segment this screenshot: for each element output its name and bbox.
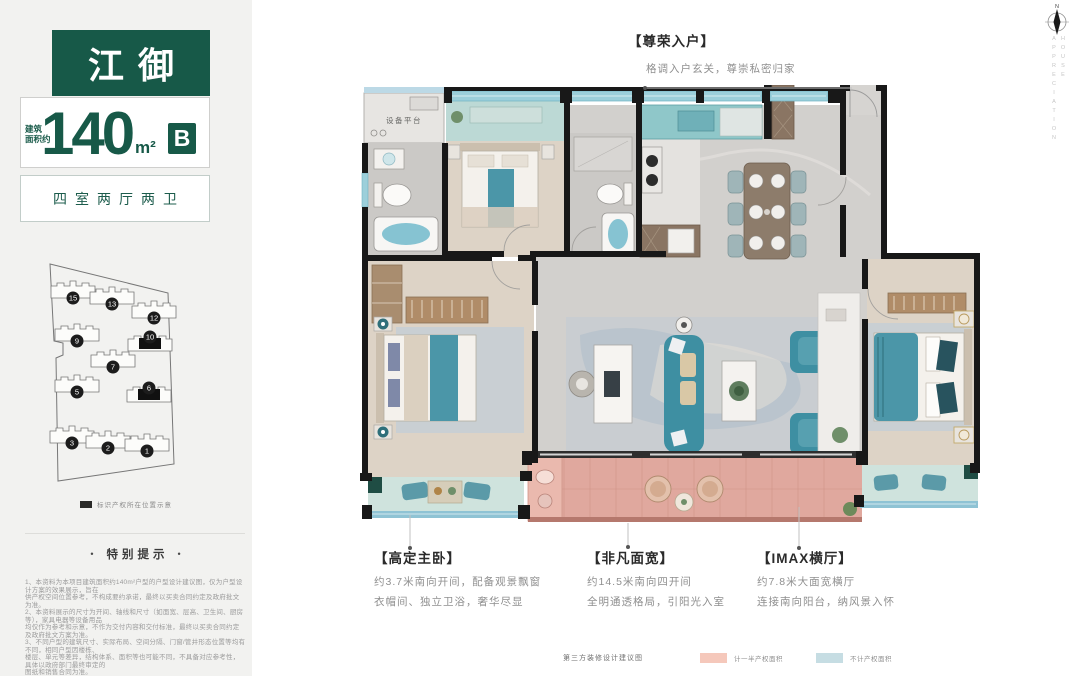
svg-text:13: 13 (108, 300, 116, 309)
window-left (362, 173, 368, 207)
svg-text:1: 1 (145, 447, 149, 456)
room-bedroom-3 (865, 259, 975, 465)
notice-line: 1、本资料为本项目建筑面积约140m²户型的户型设计建议图，仅为户型设计方案的效… (25, 579, 246, 594)
kitchen-sink (678, 111, 714, 131)
notice-body: 1、本资料为本项目建筑面积约140m²户型的户型设计建议图，仅为户型设计方案的效… (25, 579, 246, 676)
legend-label-half-area: 计一半产权面积 (734, 653, 783, 663)
master-bay-window (368, 477, 524, 513)
room-bathroom-2 (570, 133, 636, 257)
svg-text:15: 15 (69, 294, 77, 303)
brand-name: 江御 (52, 30, 210, 96)
compass-icon: N (1042, 2, 1072, 38)
site-building-2: 2 (86, 431, 130, 455)
unit-type-badge: B (168, 123, 196, 154)
svg-text:12: 12 (150, 314, 158, 323)
area-value: 140 (41, 98, 132, 169)
notice-title: 特别提示 (103, 546, 169, 562)
equipment-platform-label: 设备平台 (386, 115, 422, 125)
balcony-laundry (528, 457, 562, 521)
room-equipment-platform: 设备平台 (364, 87, 444, 143)
callout-entry: 【尊荣入户】 格调入户玄关，尊崇私密归家 (628, 30, 796, 80)
callout-master-line-2: 衣帽间、独立卫浴，奢华尽显 (374, 593, 541, 613)
legend-title: 第三方装修设计建议图 (563, 653, 643, 663)
bedroom-3-bay-window (860, 465, 978, 503)
callout-frontage: 【非凡面宽】 约14.5米南向四开间 全明通透格局，引阳光入室 (587, 547, 725, 612)
callout-master-line-1: 约3.7米南向开间，配备观景飘窗 (374, 573, 541, 593)
legend-swatch-half-area (700, 653, 727, 663)
callout-imax-line-1: 约7.8米大面宽横厅 (757, 573, 895, 593)
plan-legend: 第三方装修设计建议图 计一半产权面积 不计产权面积 (563, 653, 892, 663)
notice-dot-left: • (90, 549, 93, 559)
room-balcony (528, 457, 862, 521)
kitchen-stove (642, 147, 662, 193)
site-building-9: 9 (55, 324, 99, 348)
callout-master-title: 【高定主卧】 (374, 547, 541, 567)
siteplan-highlight-swatch (80, 501, 92, 508)
svg-text:2: 2 (106, 444, 110, 453)
siteplan-caption: 标识产权所在位置示意 (80, 499, 172, 509)
svg-text:3: 3 (70, 439, 74, 448)
area-box: 建筑 面积约 140 m² B (20, 97, 210, 168)
legend-label-no-area: 不计产权面积 (850, 653, 892, 663)
room-bathroom-1 (368, 143, 444, 257)
wardrobe (406, 297, 488, 323)
site-building-13: 13 (90, 287, 134, 311)
svg-text:7: 7 (111, 363, 115, 372)
side-text-house: HOUSE (1060, 36, 1066, 81)
sidebar-divider (25, 533, 245, 534)
svg-text:9: 9 (75, 337, 79, 346)
walk-in-closet (372, 265, 402, 323)
notice-line: 楼层、单元等差异，结构体系、面积等也可能不同，不具备对应参考性，具体以政府部门最… (25, 654, 246, 669)
site-building-5: 5 (55, 375, 99, 399)
site-building-6-highlighted: 6 (127, 382, 171, 403)
notice-line: 供产权空间位置参考，不构成要约承诺，最终以买卖合同约定及政府批文为准。 (25, 594, 246, 609)
living-room-furniture (566, 293, 860, 469)
callout-imax-title: 【IMAX横厅】 (757, 547, 895, 567)
site-plan: 15 13 12 9 10 7 5 6 3 2 1 (25, 255, 240, 495)
callout-frontage-line-2: 全明通透格局，引阳光入室 (587, 593, 725, 613)
site-building-1: 1 (125, 434, 169, 458)
notice-line: 均仅作为参考和示意，不作为交付内容和交付标准，最终以买卖合同约定及政府批文方案为… (25, 624, 246, 639)
notice-dot-right: • (178, 549, 181, 559)
callout-imax-line-2: 连接南向阳台，纳风景入怀 (757, 593, 895, 613)
callout-frontage-title: 【非凡面宽】 (587, 547, 725, 567)
callout-entry-line: 格调入户玄关，尊崇私密归家 (628, 60, 796, 80)
callout-imax-hall: 【IMAX横厅】 约7.8米大面宽横厅 连接南向阳台，纳风景入怀 (757, 547, 895, 612)
side-text-appreciation: APPRECIATION (1051, 36, 1057, 144)
floor-plan: 设备平台 (360, 85, 980, 555)
notice-line: 3、不同户型的建筑尺寸、实际布局、空间分隔、门窗/管井形态位置等均有不同，相同户… (25, 639, 246, 654)
callout-entry-title: 【尊荣入户】 (628, 30, 796, 50)
room-master-bedroom (368, 261, 534, 477)
site-building-7: 7 (91, 350, 135, 374)
svg-text:10: 10 (146, 333, 154, 342)
callout-master-bedroom: 【高定主卧】 约3.7米南向开间，配备观景飘窗 衣帽间、独立卫浴，奢华尽显 (374, 547, 541, 612)
special-notice: • 特别提示 • 1、本资料为本项目建筑面积约140m²户型的户型设计建议图，仅… (25, 546, 246, 676)
site-building-10-highlighted: 10 (128, 331, 172, 352)
notice-line: 图纸和销售合同为准。 (25, 669, 246, 676)
layout-type: 四室两厅两卫 (20, 175, 210, 222)
room-bedroom-2 (446, 97, 564, 257)
site-building-15: 15 (51, 281, 95, 305)
legend-swatch-no-area (816, 653, 843, 663)
left-panel: 江御 建筑 面积约 140 m² B 四室两厅两卫 15 13 12 9 10 … (0, 0, 252, 676)
callout-frontage-line-1: 约14.5米南向四开间 (587, 573, 725, 593)
area-unit: m² (135, 138, 156, 158)
svg-text:5: 5 (75, 388, 79, 397)
notice-heading: • 特别提示 • (25, 546, 246, 562)
svg-text:6: 6 (147, 384, 151, 393)
floorplan-page: 江御 建筑 面积约 140 m² B 四室两厅两卫 15 13 12 9 10 … (0, 0, 1080, 676)
notice-line: 2、本资料展示的尺寸为开间、轴线和尺寸（如面宽、层高、卫生间、厨房等），家具电器… (25, 609, 246, 624)
dining-table (728, 163, 806, 259)
